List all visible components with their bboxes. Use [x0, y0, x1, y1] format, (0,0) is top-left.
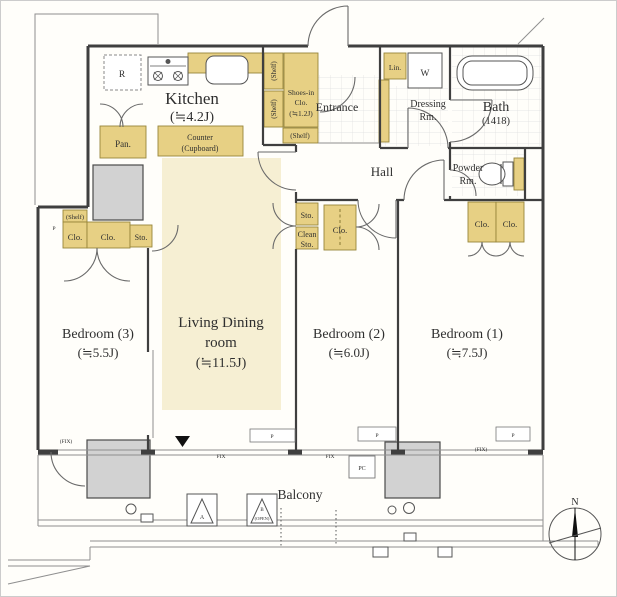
shelf-label-vert-2: (Shelf) [270, 99, 278, 119]
pillar-label-2: P [375, 433, 378, 439]
pillar-label-wall: P [52, 226, 55, 232]
pantry-label: Pan. [115, 139, 131, 149]
rail-box-right [404, 533, 416, 541]
shelf-label-vert-1: (Shelf) [270, 61, 278, 81]
bath-label: Bath [483, 100, 509, 115]
floor-plan-page: Kitchen (≒4.2J) Living Dining room (≒11.… [0, 0, 617, 597]
fridge-label: R [119, 70, 126, 80]
counter-label-2: (Cupboard) [182, 144, 219, 153]
fix-label-3: FIX [326, 454, 335, 460]
north-label: N [571, 497, 578, 508]
clean-storage-label-1: Clean [298, 230, 317, 239]
kitchen-sink-icon [206, 56, 248, 84]
living-label-2: room [205, 335, 237, 351]
closet-label-b1a: Clo. [475, 219, 489, 229]
pillar-label-3: P [511, 433, 514, 439]
washer-label: W [421, 69, 430, 79]
hatch-a-label: A [200, 515, 205, 521]
linen-label: Lin. [389, 63, 401, 72]
toilet-icon [479, 162, 513, 186]
bedroom3-label: Bedroom (3) [62, 327, 134, 342]
living-label-1: Living Dining [178, 315, 264, 331]
counter-label-1: Counter [187, 133, 213, 142]
kitchen-label: Kitchen [165, 89, 219, 108]
storage-label-nook: Sto. [301, 211, 314, 220]
dressing-floor [382, 86, 448, 146]
living-dining-floor [162, 158, 281, 410]
bedroom2-label: Bedroom (2) [313, 327, 385, 342]
hall-label: Hall [371, 164, 394, 179]
bath-size: (1418) [482, 116, 510, 127]
rail-tab-b [438, 547, 452, 557]
bathtub-icon [457, 56, 533, 90]
kitchen-size: (≒4.2J) [170, 110, 214, 125]
closet-label-b3a: Clo. [68, 232, 82, 242]
fix-label-2: FIX [217, 454, 226, 460]
shoes-size: (≒1.2J) [289, 109, 313, 118]
kitchen-duct-box [93, 165, 143, 220]
pillar-label-1: P [270, 434, 273, 440]
dressing-label-2: Rm. [420, 112, 437, 123]
entrance-label: Entrance [316, 100, 359, 114]
powder-shelf-strip [514, 158, 524, 190]
floor-plan-drawing: Kitchen (≒4.2J) Living Dining room (≒11.… [0, 0, 617, 597]
fix-label-4: (FIX) [475, 446, 488, 453]
powder-label-1: Powder [453, 163, 484, 174]
evac-hatch-a [187, 494, 217, 526]
storage-label-left: Sto. [135, 233, 148, 242]
bedroom2-size: (≒6.0J) [329, 345, 370, 360]
rail-tab-a [373, 547, 388, 557]
shelf-label-bedroom3: (Shelf) [66, 214, 84, 221]
rail-box-left [141, 514, 153, 522]
stove-icon [148, 57, 188, 85]
bedroom1-label: Bedroom (1) [431, 327, 503, 342]
dressing-label-1: Dressing [410, 99, 446, 110]
shelf-label-shoes: (Shelf) [290, 132, 310, 140]
shoes-label-2: Clo. [295, 98, 308, 107]
balcony-label: Balcony [278, 487, 323, 502]
bedroom3-size: (≒5.5J) [78, 345, 119, 360]
closet-label-b3b: Clo. [101, 232, 115, 242]
shoes-label-1: Shoes-in [288, 88, 315, 97]
clean-storage-label-2: Sto. [301, 240, 314, 249]
closet-label-b2: Clo. [333, 225, 347, 235]
pc-label: PC [358, 466, 365, 472]
living-size: (≒11.5J) [196, 356, 247, 371]
fix-label-1: (FIX) [60, 438, 73, 445]
hatch-open-label: (OPEN) [255, 516, 270, 521]
closet-label-b1b: Clo. [503, 219, 517, 229]
powder-label-2: Rm. [460, 176, 477, 187]
bedroom1-size: (≒7.5J) [447, 345, 488, 360]
balcony-unit-left [87, 440, 150, 498]
